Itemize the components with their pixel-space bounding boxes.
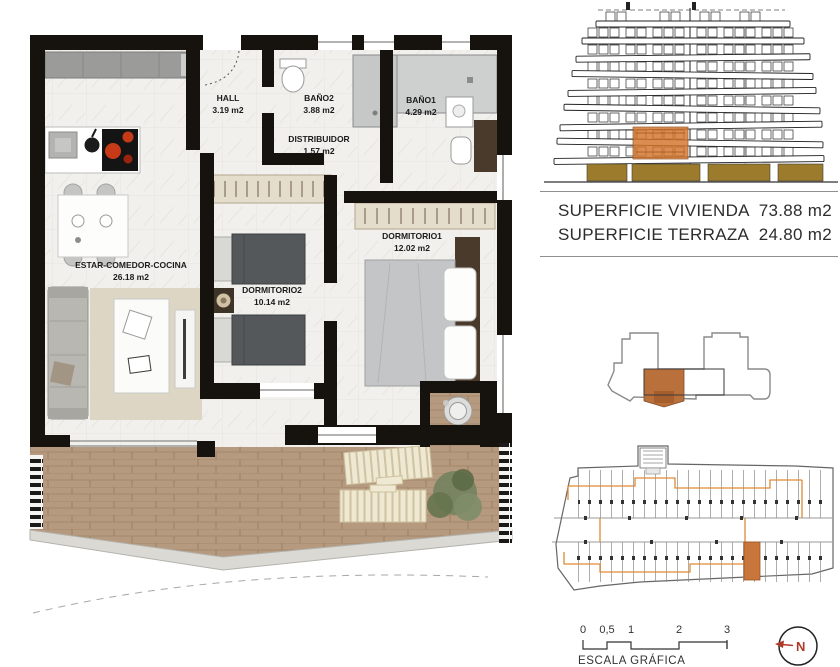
summary-value: 73.88 m2: [759, 200, 832, 222]
pan: [85, 138, 100, 153]
parking-stalls-bottom: [572, 542, 826, 582]
penthouse-row: [606, 12, 760, 21]
label-distribuidor: DISTRIBUIDOR1.57 m2: [288, 134, 349, 158]
label-bano2: BAÑO23.88 m2: [303, 93, 334, 117]
sofa: [48, 287, 88, 419]
basement-plan: [540, 440, 840, 620]
label-estar: ESTAR-COMEDOR-COCINA26.18 m2: [75, 260, 187, 284]
railing-right: [499, 443, 512, 543]
label-bano1: BAÑO14.29 m2: [405, 95, 436, 119]
summary-label: SUPERFICIE VIVIENDA: [558, 200, 750, 222]
summary-label: SUPERFICIE TERRAZA: [558, 224, 749, 246]
parking-stalls-top: [578, 470, 830, 518]
surface-summary: SUPERFICIE VIVIENDA 73.88 m2 SUPERFICIE …: [540, 191, 838, 257]
north-compass: N: [768, 618, 838, 666]
scale-bar-steps: [575, 638, 745, 652]
north-arrow: [782, 645, 793, 646]
dining-set: [58, 184, 128, 266]
toilet1: [451, 137, 471, 164]
site-boundary-dashed: [33, 575, 488, 613]
key-plan-outline: [608, 333, 770, 401]
sun-lounger-2: [340, 490, 426, 522]
label-hall: HALL3.19 m2: [212, 93, 243, 117]
antenna: [626, 2, 630, 10]
ground-floor-blocks: [587, 164, 823, 181]
pillow: [444, 268, 476, 321]
living-room: [48, 287, 202, 420]
label-dorm1: DORMITORIO112.02 m2: [382, 231, 442, 255]
scale-tick: 0: [580, 624, 586, 636]
coffee-table: [114, 299, 169, 393]
north-label: N: [796, 639, 805, 654]
scale-tick: 1: [628, 624, 634, 636]
building-elevation: [540, 0, 840, 190]
bed-single-2: [213, 318, 232, 362]
graphic-scale: 0 0,5 1 2 3 ESCALA GRÁFICA: [575, 624, 745, 666]
summary-row: SUPERFICIE TERRAZA 24.80 m2: [540, 223, 838, 247]
railing-left: [30, 455, 43, 529]
pillow: [444, 326, 476, 379]
pillow: [50, 361, 75, 386]
bed-single-1: [213, 237, 232, 281]
balcony-slabs: [554, 21, 824, 164]
highlighted-storage-unit: [744, 542, 760, 580]
antenna: [692, 2, 696, 10]
vanity: [474, 120, 497, 172]
summary-row: SUPERFICIE VIVIENDA 73.88 m2: [540, 199, 838, 223]
scale-tick: 0,5: [599, 624, 614, 636]
scale-tick: 2: [676, 624, 682, 636]
tv: [183, 319, 186, 379]
bed-double: [365, 260, 455, 386]
summary-value: 24.80 m2: [759, 224, 832, 246]
scale-caption: ESCALA GRÁFICA: [578, 655, 685, 667]
key-plan: [600, 325, 780, 425]
label-dorm2: DORMITORIO210.14 m2: [242, 285, 302, 309]
laundry: [443, 397, 472, 425]
scale-tick: 3: [724, 624, 730, 636]
wardrobe2: [205, 175, 331, 203]
apartment-floor-plan: [18, 25, 516, 640]
highlighted-unit-elevation: [633, 127, 688, 159]
